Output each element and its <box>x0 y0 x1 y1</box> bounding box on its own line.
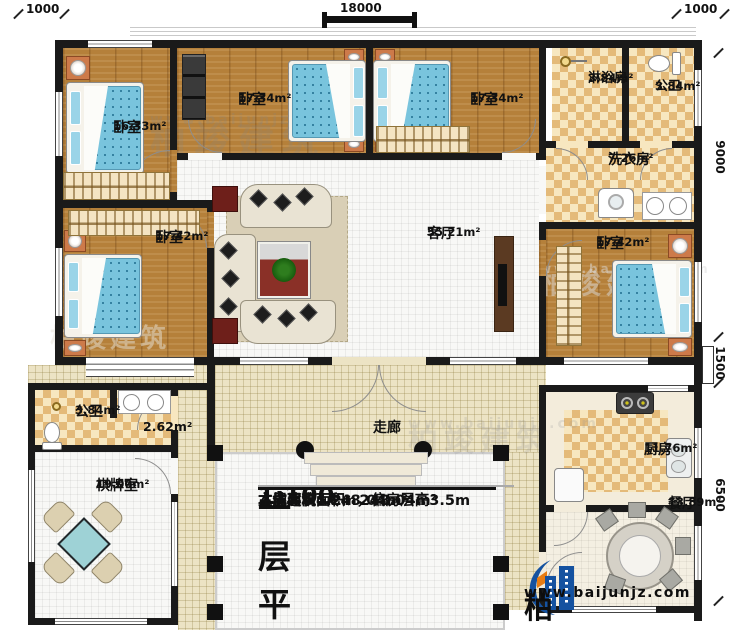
wardrobe <box>376 126 470 153</box>
wall-segment <box>207 365 215 452</box>
nightstand <box>668 234 692 258</box>
room-area: 2.62m² <box>143 420 192 434</box>
pillow <box>68 299 79 329</box>
wardrobe <box>556 246 582 346</box>
door-opening <box>171 458 178 494</box>
toilet <box>648 55 670 72</box>
dimension-tick <box>713 332 724 343</box>
room-area: 16.33m² <box>113 120 166 133</box>
door-opening <box>170 150 177 192</box>
dimension-bar <box>326 16 414 23</box>
column <box>493 445 509 461</box>
window <box>564 357 648 365</box>
window <box>88 40 152 48</box>
toilet-tank <box>672 52 681 75</box>
room-area: 3.84m² <box>588 72 633 85</box>
window <box>694 262 702 322</box>
sink <box>147 394 164 411</box>
wall-segment <box>546 222 694 229</box>
wall-segment <box>55 40 702 48</box>
wall-segment <box>539 48 546 160</box>
pillow <box>377 67 388 99</box>
window <box>55 248 63 316</box>
shower-arm <box>571 60 587 62</box>
nightstand <box>64 340 86 356</box>
dimension-right-top: 9000 <box>713 137 727 177</box>
pillow <box>70 91 81 125</box>
chair <box>675 537 691 555</box>
room-area: 17.42m² <box>596 236 649 249</box>
step <box>310 464 422 476</box>
door-opening <box>539 240 546 276</box>
bed <box>64 254 142 338</box>
column <box>493 604 509 620</box>
dimension-tick <box>13 9 24 20</box>
room-area: 3.84m² <box>655 80 700 93</box>
door-opening <box>502 153 536 160</box>
dimension-tick <box>719 9 730 20</box>
pillow <box>70 131 81 165</box>
tv-screen <box>498 264 507 306</box>
wardrobe <box>63 172 170 200</box>
room-area: 19.00m² <box>96 478 149 491</box>
sink <box>646 197 664 215</box>
wall-segment <box>170 153 546 160</box>
toilet-tank <box>42 442 62 450</box>
dimension-bar-tick <box>322 12 327 28</box>
pillow <box>679 303 690 333</box>
window <box>240 357 308 365</box>
sink-basin <box>671 460 686 473</box>
wall-segment <box>55 200 215 208</box>
column <box>493 556 509 572</box>
window <box>648 385 688 392</box>
fridge <box>554 468 584 502</box>
pillow <box>679 267 690 297</box>
burner <box>637 397 649 409</box>
dimension-top-right: 1000 <box>684 2 717 16</box>
sink <box>669 197 687 215</box>
window <box>694 526 702 580</box>
step <box>304 452 428 464</box>
room-area: 17.34m² <box>238 92 291 105</box>
dresser <box>182 54 206 120</box>
nightstand <box>668 338 692 356</box>
washer-door <box>608 194 624 210</box>
wall-segment <box>366 48 373 160</box>
dimension-tick <box>713 48 724 59</box>
dimension-right-bottom: 6500 <box>713 475 727 515</box>
dimension-tick <box>713 596 724 607</box>
room-area: 11.76m² <box>644 442 697 455</box>
pillow <box>68 262 79 292</box>
side-table <box>212 186 238 212</box>
room-area: 17.34m² <box>470 92 523 105</box>
wall-segment <box>28 383 215 390</box>
dimension-top-center: 18000 <box>340 1 382 15</box>
nightstand <box>66 56 90 80</box>
room-area: 3.84m² <box>75 404 120 417</box>
door-opening <box>332 357 426 365</box>
ceiling-lamp <box>52 402 61 411</box>
shower-head <box>560 56 571 67</box>
brand-website: www.baijunjz.com <box>524 585 691 601</box>
column <box>207 445 223 461</box>
dimension-top-left: 1000 <box>26 2 59 16</box>
stat-line-heights: 主体层高4.2m，偏房层高3.5m <box>258 489 470 510</box>
room-area: 17.42m² <box>155 230 208 243</box>
dimension-right-middle: 1500 <box>713 343 727 383</box>
column <box>207 556 223 572</box>
side-table <box>212 318 238 344</box>
title-underline-thin <box>258 485 514 487</box>
dining-table-top <box>619 535 661 577</box>
bed <box>288 60 366 142</box>
dimension-tick <box>59 9 70 20</box>
bay-window <box>86 357 194 377</box>
window <box>55 92 63 156</box>
window <box>572 606 656 613</box>
pillow <box>353 105 364 137</box>
wall-segment <box>622 48 629 148</box>
window <box>55 618 147 625</box>
floor-plan: 柏竣建筑 www.baijunjz.com 柏竣建筑 www.baijunjz.… <box>0 0 750 634</box>
door-opening <box>640 141 672 148</box>
dimension-tick <box>671 9 682 20</box>
door-opening <box>539 166 546 214</box>
room-area: 55.21m² <box>427 226 480 239</box>
window <box>28 470 35 562</box>
window <box>450 357 516 365</box>
room-name: 走廊 <box>373 420 401 436</box>
pillow <box>353 67 364 99</box>
bed <box>612 260 692 338</box>
dimension-bar-tick <box>412 12 417 28</box>
burner <box>621 397 633 409</box>
door-opening <box>556 141 588 148</box>
column <box>207 604 223 620</box>
room-area: 7.26m² <box>608 152 653 165</box>
brand-logo: 柏竣建筑 www.baijunjz.com <box>524 554 582 616</box>
chair <box>628 502 646 518</box>
toilet <box>44 422 60 443</box>
door-opening <box>554 505 586 512</box>
plant <box>272 258 296 282</box>
door-opening <box>188 153 222 160</box>
window <box>171 502 178 586</box>
sink <box>123 394 140 411</box>
